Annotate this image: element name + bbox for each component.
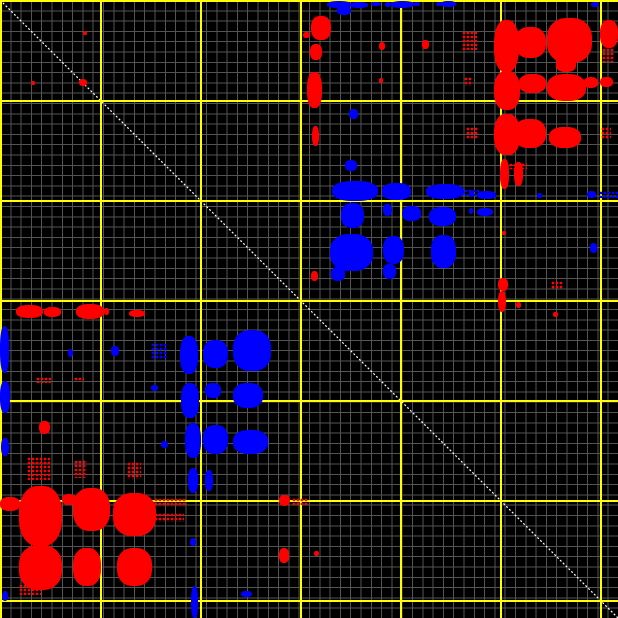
blue-matches-blob xyxy=(477,191,496,199)
blue-matches-blob xyxy=(383,204,392,216)
red-matches-blob xyxy=(601,127,611,139)
red-matches-blob xyxy=(500,159,509,189)
blue-matches-blob xyxy=(191,586,198,618)
blue-matches-blob xyxy=(180,336,198,374)
blue-matches-blob xyxy=(429,207,456,226)
red-matches-blob xyxy=(127,462,141,479)
blue-matches-blob xyxy=(331,267,345,281)
red-matches-blob xyxy=(292,498,309,505)
blue-matches-blob xyxy=(203,340,228,368)
red-matches-blob xyxy=(549,127,581,148)
blue-matches-blob xyxy=(190,538,196,546)
blue-matches-blob xyxy=(587,191,596,198)
blue-matches-blob xyxy=(241,591,252,597)
red-matches-blob xyxy=(154,498,186,507)
blue-matches-blob xyxy=(383,236,404,264)
red-matches-blob xyxy=(547,74,586,101)
red-matches-blob xyxy=(113,493,156,536)
red-matches-blob xyxy=(498,278,508,291)
red-matches-blob xyxy=(379,42,385,50)
blue-matches-blob xyxy=(0,381,10,413)
red-matches-blob xyxy=(379,78,383,83)
blue-matches-blob xyxy=(0,326,9,373)
red-matches-blob xyxy=(498,291,506,312)
red-matches-blob xyxy=(553,312,558,317)
red-matches-blob xyxy=(494,71,520,110)
red-matches-blob xyxy=(303,32,310,38)
blue-matches-blob xyxy=(111,346,119,356)
red-matches-blob xyxy=(422,40,429,49)
red-matches-blob xyxy=(547,18,592,63)
blue-matches-blob xyxy=(431,235,456,268)
blue-matches-blob xyxy=(233,430,268,454)
red-matches-blob xyxy=(509,163,527,169)
blue-matches-blob xyxy=(203,425,228,454)
red-matches-blob xyxy=(556,58,576,72)
blue-matches-blob xyxy=(426,184,464,199)
blue-matches-blob xyxy=(345,160,357,171)
blue-matches-blob xyxy=(414,2,420,6)
red-matches-blob xyxy=(311,271,318,281)
red-matches-blob xyxy=(83,31,87,35)
blue-matches-blob xyxy=(2,591,8,601)
red-matches-blob xyxy=(514,119,546,148)
red-matches-blob xyxy=(584,77,598,88)
red-matches-blob xyxy=(104,308,109,315)
blue-matches-blob xyxy=(383,264,396,279)
blue-matches-blob xyxy=(382,183,411,200)
blue-matches-blob xyxy=(469,208,473,214)
blue-matches-blob xyxy=(181,383,199,418)
red-matches-blob xyxy=(312,126,319,146)
red-matches-blob xyxy=(73,548,101,586)
blue-matches-blob xyxy=(341,203,364,228)
red-matches-blob xyxy=(515,27,546,58)
red-matches-blob xyxy=(74,377,84,382)
red-matches-blob xyxy=(39,421,50,434)
red-matches-blob xyxy=(311,16,331,40)
blue-matches-blob xyxy=(591,2,599,7)
blue-matches-blob xyxy=(330,234,373,271)
blue-matches-blob xyxy=(391,1,414,8)
red-matches-blob xyxy=(73,488,110,531)
red-matches-blob xyxy=(19,584,41,595)
red-matches-blob xyxy=(16,305,43,318)
red-matches-blob xyxy=(502,231,506,235)
red-matches-blob xyxy=(602,48,614,62)
red-matches-blob xyxy=(279,548,289,563)
red-matches-blob xyxy=(551,281,563,289)
red-matches-blob xyxy=(76,304,104,319)
red-matches-blob xyxy=(154,513,184,522)
blue-matches-blob xyxy=(185,423,201,458)
red-matches-blob xyxy=(466,127,479,139)
blue-matches-blob xyxy=(477,208,493,216)
blue-matches-blob xyxy=(205,383,221,398)
blue-matches-blob xyxy=(350,2,368,8)
red-matches-blob xyxy=(27,457,50,480)
blue-matches-blob xyxy=(537,193,542,198)
blue-matches-blob xyxy=(590,243,597,253)
blue-matches-blob xyxy=(402,206,421,221)
red-matches-blob xyxy=(36,377,51,383)
blue-matches-blob xyxy=(151,343,168,360)
blue-matches-blob xyxy=(441,1,456,7)
red-matches-blob xyxy=(19,486,62,546)
blue-matches-blob xyxy=(151,385,158,391)
red-matches-blob xyxy=(307,72,322,108)
blue-matches-blob xyxy=(349,109,358,119)
blue-matches-blob xyxy=(188,468,198,493)
red-matches-blob xyxy=(314,551,319,556)
red-matches-blob xyxy=(519,74,546,93)
blue-matches-blob xyxy=(233,383,263,408)
blue-matches-blob xyxy=(161,441,168,448)
red-matches-blob xyxy=(279,495,290,506)
red-matches-blob xyxy=(600,77,613,87)
red-matches-blob xyxy=(44,307,61,317)
blue-matches-blob xyxy=(68,349,73,357)
blue-matches-blob xyxy=(205,470,213,491)
dotplot-matrix xyxy=(0,0,618,618)
red-matches-blob xyxy=(310,44,322,60)
red-matches-blob xyxy=(516,302,521,308)
red-matches-blob xyxy=(74,460,87,478)
red-matches-blob xyxy=(117,548,152,586)
red-matches-blob xyxy=(79,79,87,86)
red-matches-blob xyxy=(0,497,20,511)
blob-layer xyxy=(0,0,618,618)
red-matches-blob xyxy=(464,77,472,86)
blue-matches-blob xyxy=(1,438,9,456)
blue-matches-blob xyxy=(233,330,271,371)
red-matches-blob xyxy=(31,81,35,85)
red-matches-blob xyxy=(129,310,145,317)
blue-matches-blob xyxy=(599,191,618,198)
blue-matches-blob xyxy=(469,191,474,197)
blue-matches-blob xyxy=(337,6,351,15)
red-matches-blob xyxy=(462,31,477,50)
blue-matches-blob xyxy=(332,181,378,201)
red-matches-blob xyxy=(600,20,618,48)
blue-matches-blob xyxy=(371,2,381,6)
